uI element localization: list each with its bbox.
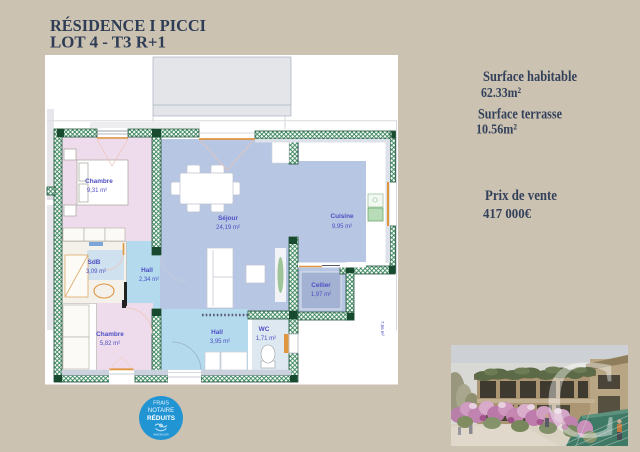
svg-text:Surface habitable: Surface habitable [483, 69, 577, 85]
svg-text:9,31 m²: 9,31 m² [87, 188, 107, 194]
svg-text:Cuisine: Cuisine [330, 213, 354, 220]
svg-text:417 000€: 417 000€ [483, 207, 531, 222]
svg-text:Chambre: Chambre [85, 178, 113, 185]
svg-text:LOT 4 - T3 R+1: LOT 4 - T3 R+1 [50, 33, 166, 52]
svg-text:Hall: Hall [141, 267, 153, 274]
svg-text:7,56 m²: 7,56 m² [380, 321, 385, 336]
svg-text:3,95 m²: 3,95 m² [210, 339, 230, 345]
svg-text:RÉDUITS: RÉDUITS [147, 413, 176, 422]
svg-text:Hall: Hall [211, 329, 223, 336]
svg-text:24,19 m²: 24,19 m² [216, 225, 240, 231]
svg-text:1,97 m²: 1,97 m² [311, 292, 331, 298]
svg-text:2,34 m²: 2,34 m² [139, 277, 159, 283]
svg-text:1,71 m²: 1,71 m² [256, 336, 276, 342]
svg-text:NOTAIRE: NOTAIRE [148, 408, 174, 414]
svg-text:5,82 m²: 5,82 m² [100, 341, 120, 347]
svg-text:IMMOBILIER: IMMOBILIER [153, 433, 168, 437]
svg-text:Prix de vente: Prix de vente [485, 188, 557, 204]
svg-text:3,09 m²: 3,09 m² [86, 269, 106, 275]
svg-text:C1: C1 [544, 338, 640, 452]
svg-text:10.56m²: 10.56m² [476, 123, 517, 138]
svg-text:Surface terrasse: Surface terrasse [478, 107, 562, 123]
svg-text:62.33m²: 62.33m² [481, 86, 521, 101]
svg-text:Cellier: Cellier [311, 282, 331, 289]
svg-text:Séjour: Séjour [218, 215, 238, 222]
svg-text:9,95 m²: 9,95 m² [332, 224, 352, 230]
svg-text:WC: WC [259, 326, 270, 333]
svg-text:SdB: SdB [88, 259, 101, 266]
svg-text:FRAIS: FRAIS [153, 401, 169, 407]
svg-text:Chambre: Chambre [96, 331, 124, 338]
